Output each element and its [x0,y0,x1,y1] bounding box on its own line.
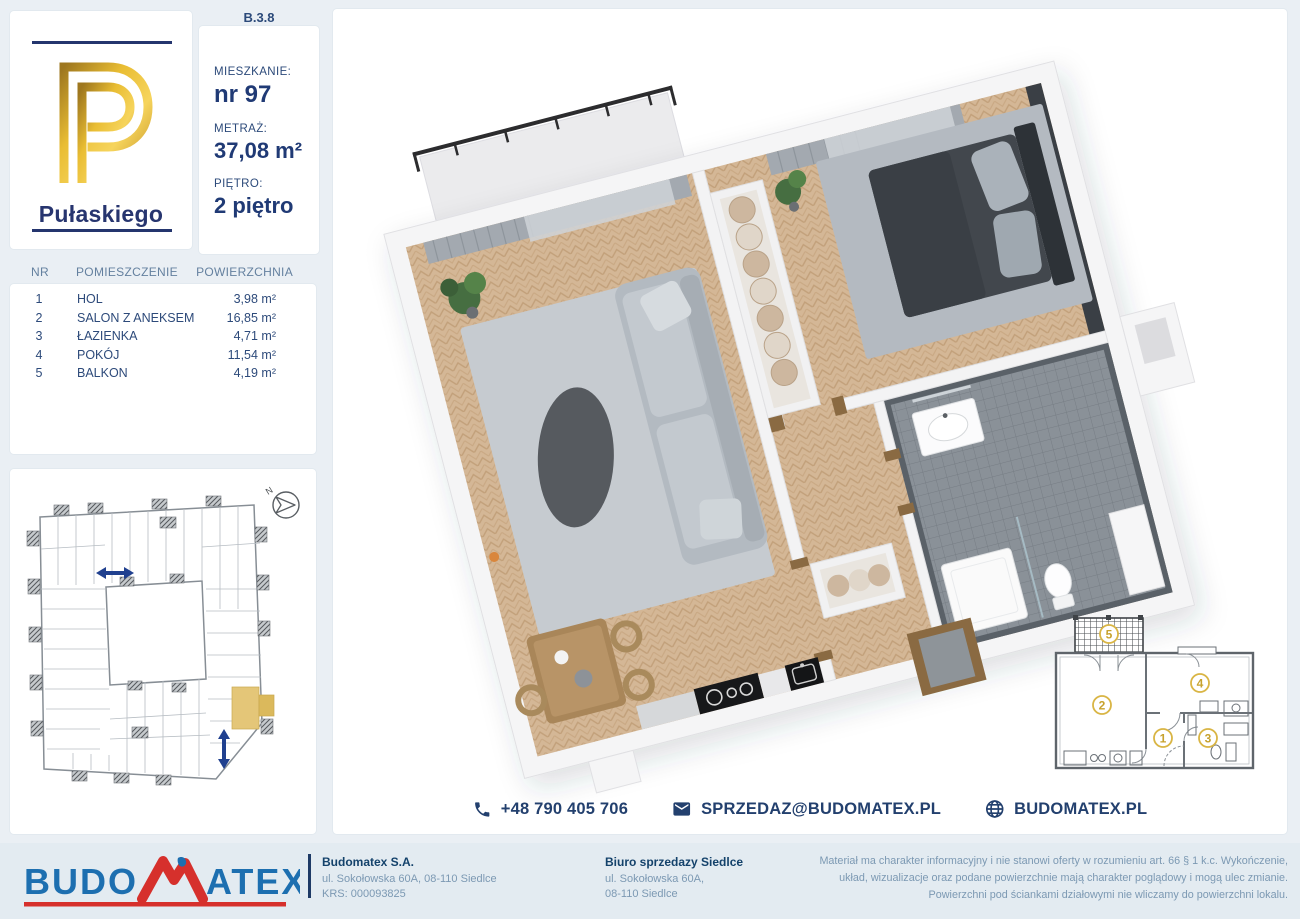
table-row: 2 SALON Z ANEKSEM 16,85 m² [10,311,316,330]
globe-icon [985,799,1005,819]
row-area: 11,54 m² [228,348,276,362]
project-logo-card: Pułaskiego [9,10,193,250]
company-address: ul. Sokołowska 60A, 08-110 Siedlce [322,872,497,887]
row-nr: 3 [32,329,46,343]
office-address-line1: ul. Sokołowska 60A, [605,872,743,887]
budomatex-logo: BUDO ATEX [20,852,300,910]
phone-number: +48 790 405 706 [501,800,628,819]
room-number-balcony: 5 [1106,628,1113,642]
office-address-line2: 08-110 Siedlce [605,887,743,902]
table-row: 1 HOL 3,98 m² [10,292,316,311]
row-name: POKÓJ [77,348,119,362]
area-label: METRAŻ: [214,123,319,135]
rooms-table-header: NR POMIESZCZENIE POWIERZCHNIA [9,265,317,281]
phone-icon [473,800,492,819]
apartment-label: MIESZKANIE: [214,66,319,78]
table-row: 4 POKÓJ 11,54 m² [10,348,316,367]
project-name: Pułaskiego [10,201,192,228]
company-krs: KRS: 000093825 [322,887,497,902]
render-panel: 5 2 4 1 3 +48 790 405 706 SPRZEDAZ@BUDOM… [332,8,1288,835]
envelope-icon [672,799,692,819]
footer: BUDO ATEX Budomatex S.A. ul. Sokołowska … [0,843,1300,919]
header-area: POWIERZCHNIA [196,265,293,279]
row-nr: 2 [32,311,46,325]
logo-m-mark [142,861,203,899]
row-name: SALON Z ANEKSEM [77,311,194,325]
row-name: BALKON [77,366,128,380]
table-row: 3 ŁAZIENKA 4,71 m² [10,329,316,348]
room-number-bedroom: 4 [1197,677,1204,691]
rooms-table: 1 HOL 3,98 m² 2 SALON Z ANEKSEM 16,85 m²… [9,283,317,455]
sales-office-block: Biuro sprzedazy Siedlce ul. Sokołowska 6… [605,855,743,902]
building-outline [27,496,274,785]
apartment-number: nr 97 [214,81,319,109]
logo-text-budo: BUDO [24,861,138,902]
company-name: Budomatex S.A. [322,855,497,870]
company-address-block: Budomatex S.A. ul. Sokołowska 60A, 08-11… [322,855,497,902]
website-contact[interactable]: BUDOMATEX.PL [985,799,1147,819]
logo-rule-bottom [32,229,172,232]
unit-code-label: B.3.8 [198,10,320,25]
row-nr: 5 [32,366,46,380]
area-value: 37,08 m² [214,138,319,164]
room-number-salon: 2 [1099,699,1106,713]
room-number-bath: 3 [1205,732,1212,746]
floor-value: 2 piętro [214,193,319,219]
phone-contact[interactable]: +48 790 405 706 [473,800,628,819]
mini-floor-plan: 5 2 4 1 3 [1048,603,1268,793]
footer-divider [308,854,311,898]
pulaskiego-logo-icon [50,57,154,183]
contact-row: +48 790 405 706 SPRZEDAZ@BUDOMATEX.PL BU… [473,799,1148,819]
row-name: ŁAZIENKA [77,329,137,343]
row-area: 4,19 m² [234,366,276,380]
office-name: Biuro sprzedazy Siedlce [605,855,743,870]
row-nr: 4 [32,348,46,362]
website-url: BUDOMATEX.PL [1014,800,1147,819]
table-row: 5 BALKON 4,19 m² [10,366,316,385]
email-address: SPRZEDAZ@BUDOMATEX.PL [701,800,941,819]
row-area: 4,71 m² [234,329,276,343]
logo-rule-top [32,41,172,44]
room-number-hall: 1 [1160,732,1167,746]
logo-underline [24,902,286,907]
row-nr: 1 [32,292,46,306]
header-nr: NR [31,265,49,279]
email-contact[interactable]: SPRZEDAZ@BUDOMATEX.PL [672,799,941,819]
floor-label: PIĘTRO: [214,178,319,190]
row-area: 3,98 m² [234,292,276,306]
building-site-plan: N [10,469,316,833]
row-area: 16,85 m² [227,311,276,325]
north-label: N [264,485,275,497]
row-name: HOL [77,292,103,306]
building-site-plan-card: N [9,468,317,835]
north-compass-icon: N [264,485,299,518]
legal-disclaimer: Materiał ma charakter informacyjny i nie… [816,853,1288,904]
header-name: POMIESZCZENIE [76,265,178,279]
logo-text-atex: ATEX [206,861,300,902]
apartment-info-card: MIESZKANIE: nr 97 METRAŻ: 37,08 m² PIĘTR… [198,25,320,255]
